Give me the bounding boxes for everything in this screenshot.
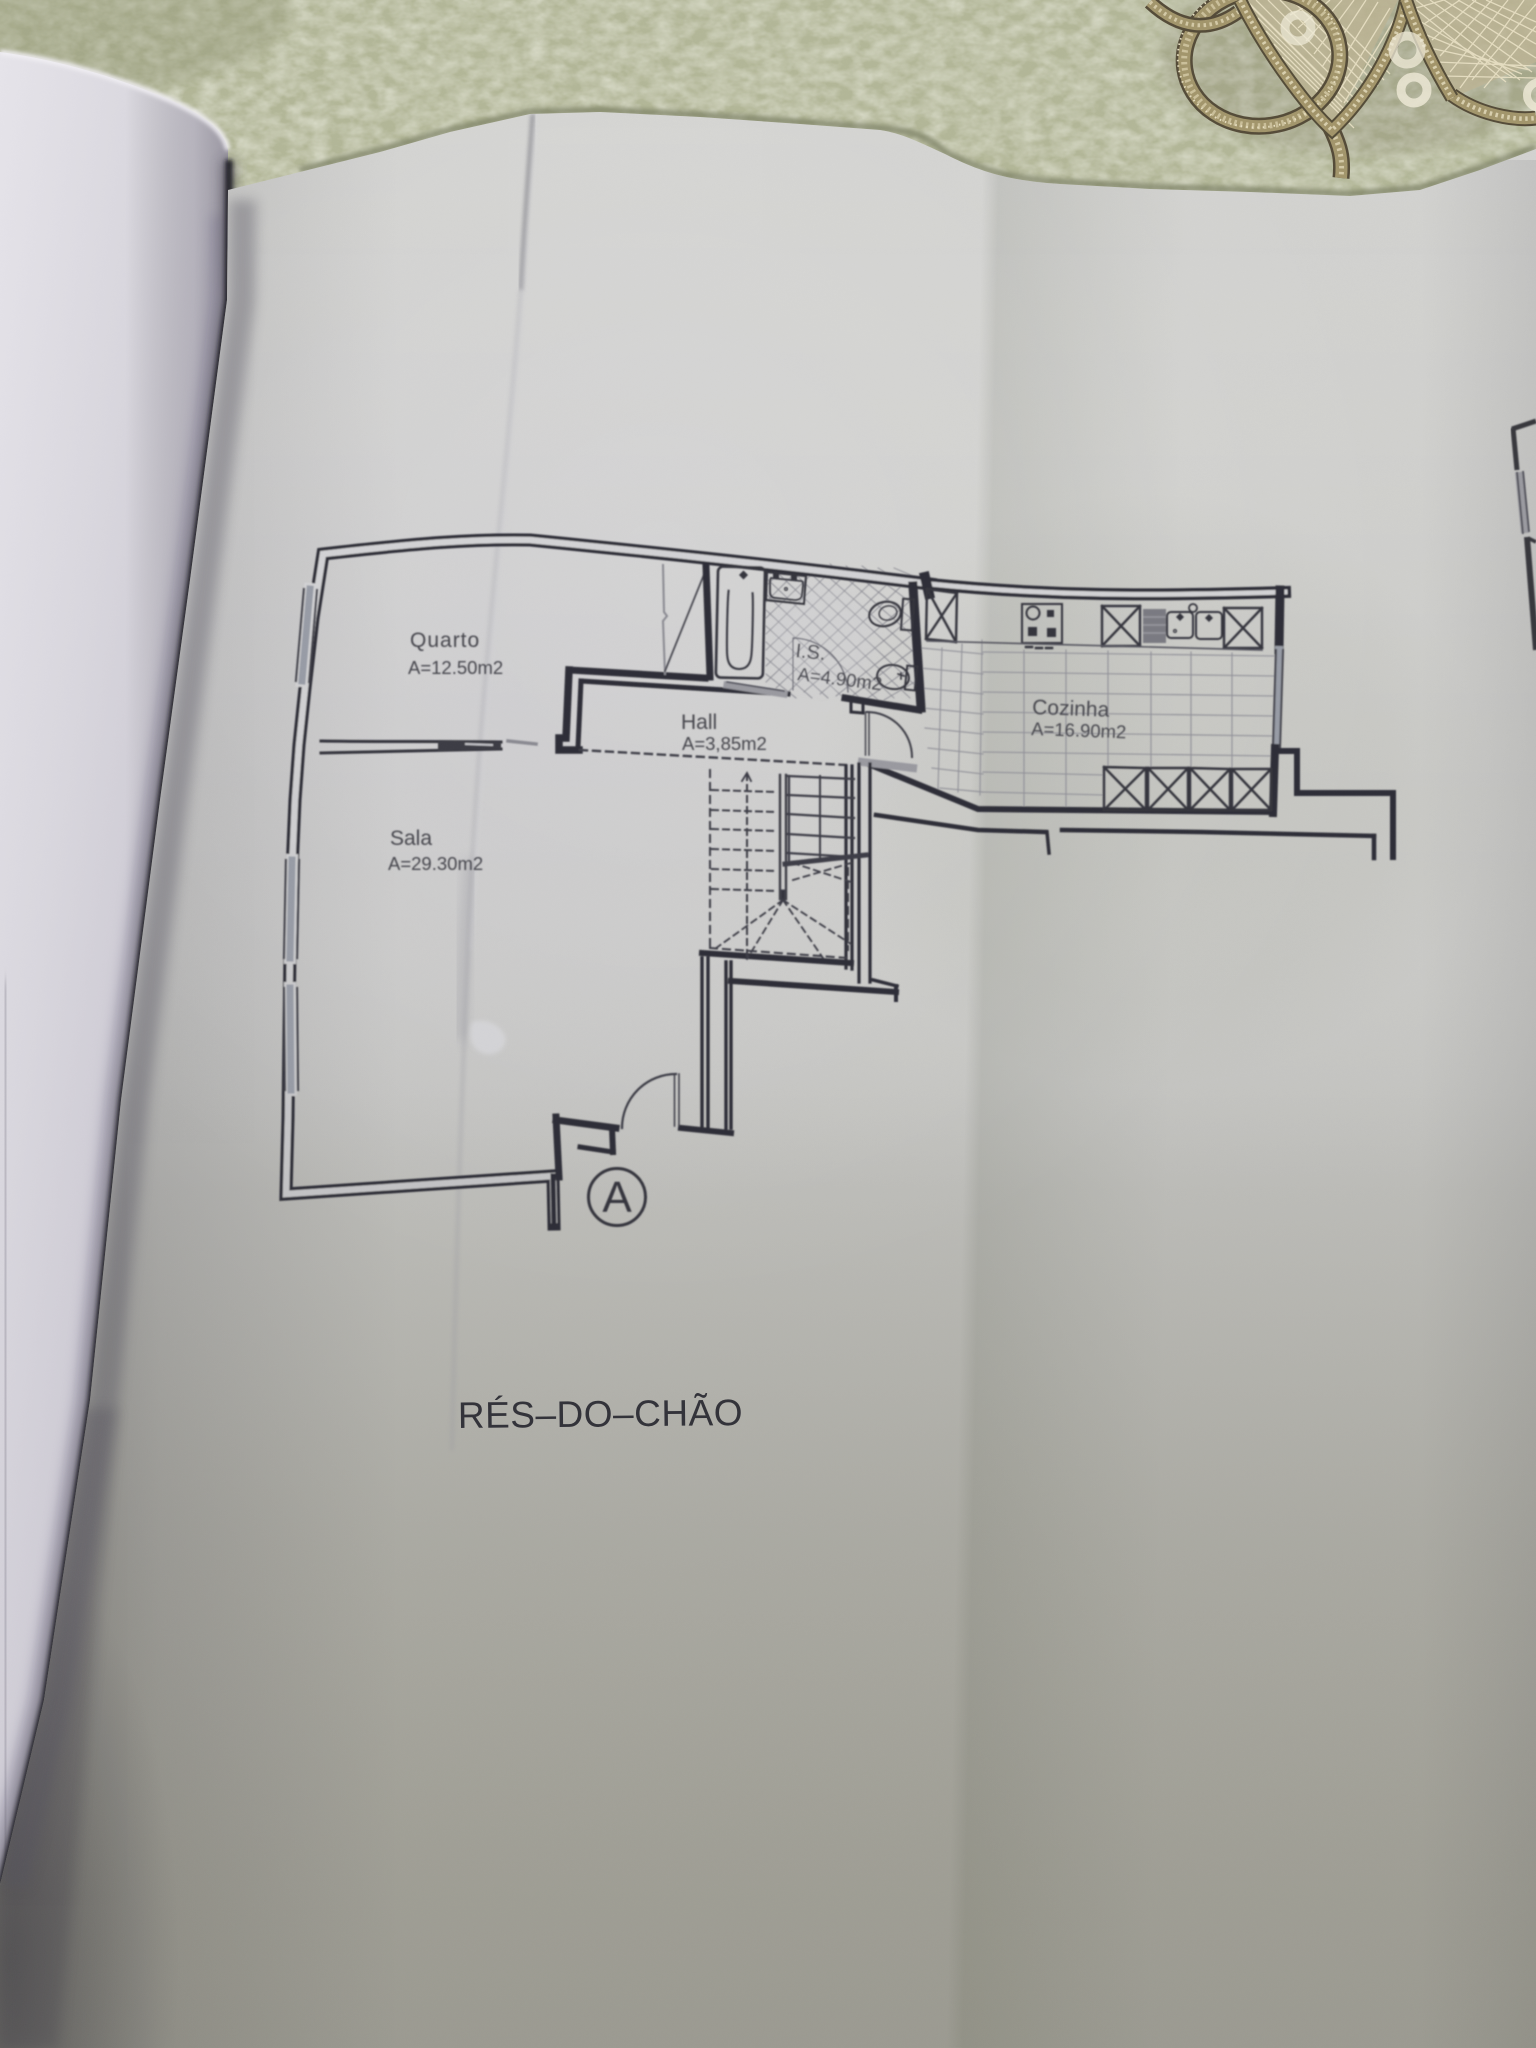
svg-text:RÉS–DO–CHÃO: RÉS–DO–CHÃO [458,1392,744,1436]
